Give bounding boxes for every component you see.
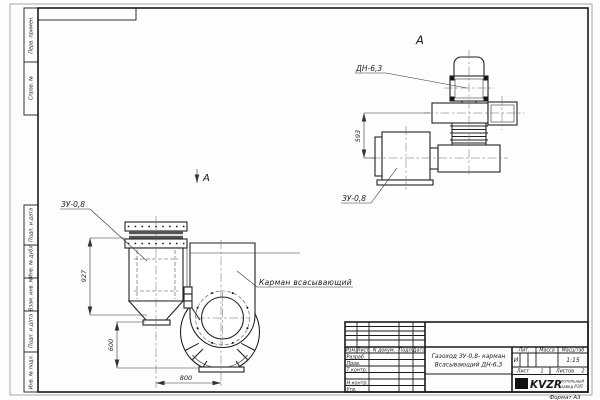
kvzr-logo: KVZR котельный завод РЭП	[515, 378, 584, 391]
dim-600: 600	[107, 339, 115, 351]
lit-label: Лит.	[517, 348, 529, 354]
scale-value: 1:15	[566, 357, 580, 364]
view-arrow-front: А	[197, 169, 210, 184]
col-izm: Изм.	[345, 348, 356, 354]
format-label: Формат А3	[549, 395, 581, 400]
row-prov: Пров.	[347, 361, 361, 367]
zu-unit-top	[375, 132, 433, 185]
zu-label-front: ЗУ-0,8	[61, 200, 85, 209]
drawing-title-line2: Всасывающий ДН-6,3	[435, 362, 503, 369]
list-value: 1	[540, 369, 543, 375]
margin-label-inv-podl: Инв. № подл.	[29, 355, 35, 390]
dn-label: ДН-6,3	[355, 64, 382, 73]
zu-label-top: ЗУ-0,8	[342, 194, 366, 203]
margin-columns: Перв. примен. Справ. № Подп. и дата Инв.…	[24, 8, 38, 392]
listov-label: Листов	[555, 369, 574, 375]
list-label: Лист	[516, 369, 529, 375]
view-label-top: А	[415, 33, 424, 47]
side-box	[488, 102, 517, 125]
lit-value: И	[514, 357, 519, 364]
top-view: А	[341, 33, 524, 203]
col-podp: Подп.	[399, 348, 414, 354]
mass-label: Масса	[539, 348, 554, 354]
margin-label-sprav-no: Справ. №	[29, 76, 35, 100]
drawing-svg: Перв. примен. Справ. № Подп. и дата Инв.…	[0, 0, 600, 400]
margin-label-perv-primen: Перв. примен.	[29, 16, 35, 54]
view-arrow-label: А	[202, 173, 210, 184]
dim-927: 927	[80, 269, 88, 282]
pocket-label: Карман всасывающий	[259, 278, 352, 287]
drawing-title-line1: Газоход ЗУ-0,8- карман	[432, 353, 506, 360]
row-tkontr: Т.контр.	[347, 368, 368, 374]
col-doc: N докум.	[373, 348, 395, 354]
corner-stamp	[38, 8, 136, 20]
col-data: Дата	[412, 348, 425, 354]
logo-mark	[515, 378, 528, 389]
company-line1: котельный	[561, 379, 584, 384]
logo-text: KVZR	[530, 379, 562, 391]
front-view: 927 600 800 А ЗУ-0,8 Карман всасывающий	[60, 169, 353, 388]
row-nkontr: Н.контр.	[347, 381, 368, 387]
company-line2: завод РЭП	[561, 384, 583, 389]
margin-label-inv-dubl: Инв. № дубл.	[29, 244, 35, 278]
drawing-sheet: Перв. примен. Справ. № Подп. и дата Инв.…	[0, 0, 600, 400]
listov-value: 2	[581, 369, 584, 375]
dim-800: 800	[180, 374, 192, 382]
sheet-frame	[10, 4, 592, 395]
margin-label-podp-data-1: Подп. и дата	[29, 208, 35, 242]
dim-593: 593	[354, 130, 362, 142]
margin-label-vzam-inv: Взам. инв. №	[29, 277, 35, 311]
scale-label: Масштаб	[562, 348, 585, 354]
margin-label-podp-data-2: Подп. и дата	[29, 314, 35, 348]
row-utv: Утв.	[347, 387, 357, 393]
col-list: Лист	[356, 348, 369, 354]
title-block-right: Лит. Масса Масштаб И 1:15 Лист 1 Листов …	[514, 348, 585, 375]
title-block: Изм. Лист N докум. Подп. Дата Разраб. Пр…	[345, 322, 588, 400]
row-razrab: Разраб.	[347, 355, 366, 361]
